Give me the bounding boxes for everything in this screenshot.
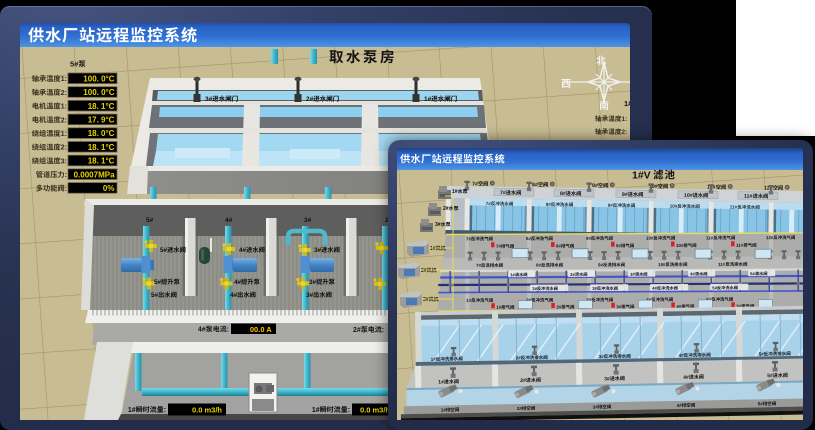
svg-text:2#: 2#: [517, 406, 523, 411]
svg-text:3#: 3#: [599, 354, 605, 359]
svg-text:9#: 9#: [598, 262, 603, 267]
svg-text:5#: 5#: [759, 352, 765, 357]
svg-text:10#: 10#: [658, 262, 666, 267]
svg-text:1#: 1#: [496, 305, 501, 310]
svg-text:5#: 5#: [146, 217, 154, 224]
svg-text:9#: 9#: [622, 192, 628, 198]
svg-text:100. 0°C: 100. 0°C: [83, 88, 114, 97]
svg-text:11#: 11#: [706, 235, 714, 240]
svg-text:3#: 3#: [205, 96, 213, 103]
svg-text:1#: 1#: [430, 246, 436, 252]
svg-text:3#: 3#: [306, 292, 314, 299]
svg-text:5#: 5#: [154, 279, 162, 286]
svg-text:4#: 4#: [690, 271, 695, 276]
svg-text:2#: 2#: [353, 327, 361, 334]
svg-text:1#: 1#: [424, 96, 432, 103]
svg-text:18. 1°C: 18. 1°C: [88, 157, 115, 166]
svg-text:11#: 11#: [718, 262, 726, 267]
svg-text:1#: 1#: [438, 379, 444, 385]
svg-text:8#: 8#: [560, 191, 566, 197]
svg-text:8#: 8#: [546, 202, 552, 207]
svg-text:100. 0°C: 100. 0°C: [83, 74, 114, 83]
svg-text:2:: 2:: [61, 143, 67, 152]
svg-text:5#: 5#: [712, 285, 717, 290]
svg-text:1#: 1#: [624, 99, 630, 108]
svg-text:4#: 4#: [230, 292, 238, 299]
svg-text:11#: 11#: [730, 204, 738, 209]
svg-text:8#: 8#: [536, 263, 541, 268]
svg-text:4#: 4#: [239, 247, 247, 254]
svg-text:5#: 5#: [767, 373, 773, 379]
svg-text:2#: 2#: [306, 96, 314, 103]
svg-text:0.0 m3/h: 0.0 m3/h: [360, 406, 390, 415]
svg-text::: :: [227, 327, 229, 334]
svg-text:10#: 10#: [646, 236, 654, 241]
svg-text:3#: 3#: [423, 297, 429, 303]
svg-text:1:: 1:: [61, 102, 67, 111]
svg-text:9#: 9#: [616, 243, 621, 248]
svg-text:5#: 5#: [758, 401, 764, 406]
svg-text:1:: 1:: [61, 129, 67, 138]
svg-text:4#: 4#: [198, 327, 206, 334]
svg-text:7#: 7#: [486, 201, 492, 206]
svg-text:11#: 11#: [736, 243, 744, 248]
svg-text:2#: 2#: [570, 272, 575, 277]
svg-text:7#: 7#: [500, 190, 506, 196]
svg-text:10#: 10#: [676, 243, 684, 248]
svg-text:3#: 3#: [314, 247, 322, 254]
svg-text:3#: 3#: [304, 217, 312, 224]
svg-text:3#: 3#: [592, 286, 597, 291]
svg-text:5#: 5#: [750, 271, 755, 276]
svg-text:1#: 1#: [466, 298, 471, 303]
svg-text:1#: 1#: [312, 407, 320, 414]
svg-text::: :: [65, 170, 67, 179]
svg-text:12#: 12#: [766, 235, 774, 240]
svg-text:9#: 9#: [608, 203, 614, 208]
svg-text:2#: 2#: [443, 206, 449, 212]
svg-text:2:: 2:: [61, 115, 67, 124]
svg-text:1#: 1#: [452, 189, 458, 195]
svg-text:7#: 7#: [466, 236, 471, 241]
svg-text:1:: 1:: [61, 74, 67, 83]
svg-text::: :: [65, 184, 67, 193]
svg-text:3#: 3#: [604, 376, 610, 382]
svg-text:7#: 7#: [496, 244, 501, 249]
svg-text:2#: 2#: [516, 355, 522, 360]
svg-text:2:: 2:: [61, 88, 67, 97]
svg-text:1#: 1#: [128, 407, 136, 414]
svg-text:1#: 1#: [441, 407, 447, 412]
svg-text:4#: 4#: [679, 353, 685, 358]
svg-text:1#: 1#: [431, 357, 437, 362]
svg-text:0%: 0%: [103, 184, 115, 193]
svg-text:18. 1°C: 18. 1°C: [88, 102, 115, 111]
svg-text:3#: 3#: [630, 272, 635, 277]
svg-text::: :: [164, 407, 166, 414]
svg-text:10#: 10#: [670, 204, 678, 209]
svg-text::: :: [382, 327, 384, 334]
svg-text:2#: 2#: [421, 268, 427, 274]
svg-text:7#: 7#: [476, 263, 481, 268]
svg-text:8#: 8#: [526, 236, 531, 241]
svg-text:11#: 11#: [744, 194, 753, 200]
svg-text:18. 1°C: 18. 1°C: [88, 143, 115, 152]
svg-text:4#: 4#: [225, 217, 233, 224]
svg-text:3#: 3#: [309, 279, 317, 286]
svg-text:1:: 1:: [621, 116, 627, 123]
svg-text:0.0 m3/h: 0.0 m3/h: [192, 406, 222, 415]
svg-text:1#: 1#: [510, 272, 515, 277]
svg-text:2#: 2#: [532, 286, 537, 291]
svg-text:3#: 3#: [435, 222, 441, 228]
svg-text::: :: [348, 407, 350, 414]
svg-text:5#: 5#: [160, 247, 168, 254]
svg-text:5#: 5#: [151, 292, 159, 299]
svg-text:0.0007MPa: 0.0007MPa: [74, 170, 115, 179]
svg-text:8#: 8#: [556, 243, 561, 248]
svg-text:10#: 10#: [684, 193, 693, 199]
svg-text:5#: 5#: [70, 60, 79, 69]
svg-text:4#: 4#: [677, 403, 683, 408]
svg-text:4#: 4#: [652, 286, 657, 291]
svg-text:4#: 4#: [234, 279, 242, 286]
svg-text:4#: 4#: [683, 375, 689, 381]
svg-text:9#: 9#: [586, 236, 591, 241]
svg-text:2#: 2#: [520, 378, 526, 384]
svg-text:2#: 2#: [556, 304, 561, 309]
svg-text:2:: 2:: [621, 129, 627, 136]
svg-text:18. 0°C: 18. 0°C: [88, 129, 115, 138]
svg-text:1#V: 1#V: [632, 170, 651, 182]
svg-text:17. 9°C: 17. 9°C: [88, 116, 115, 125]
svg-text:3:: 3:: [61, 156, 67, 165]
svg-text:00.0 A: 00.0 A: [250, 325, 272, 334]
svg-text:3#: 3#: [593, 404, 599, 409]
svg-text:3#: 3#: [616, 304, 621, 309]
